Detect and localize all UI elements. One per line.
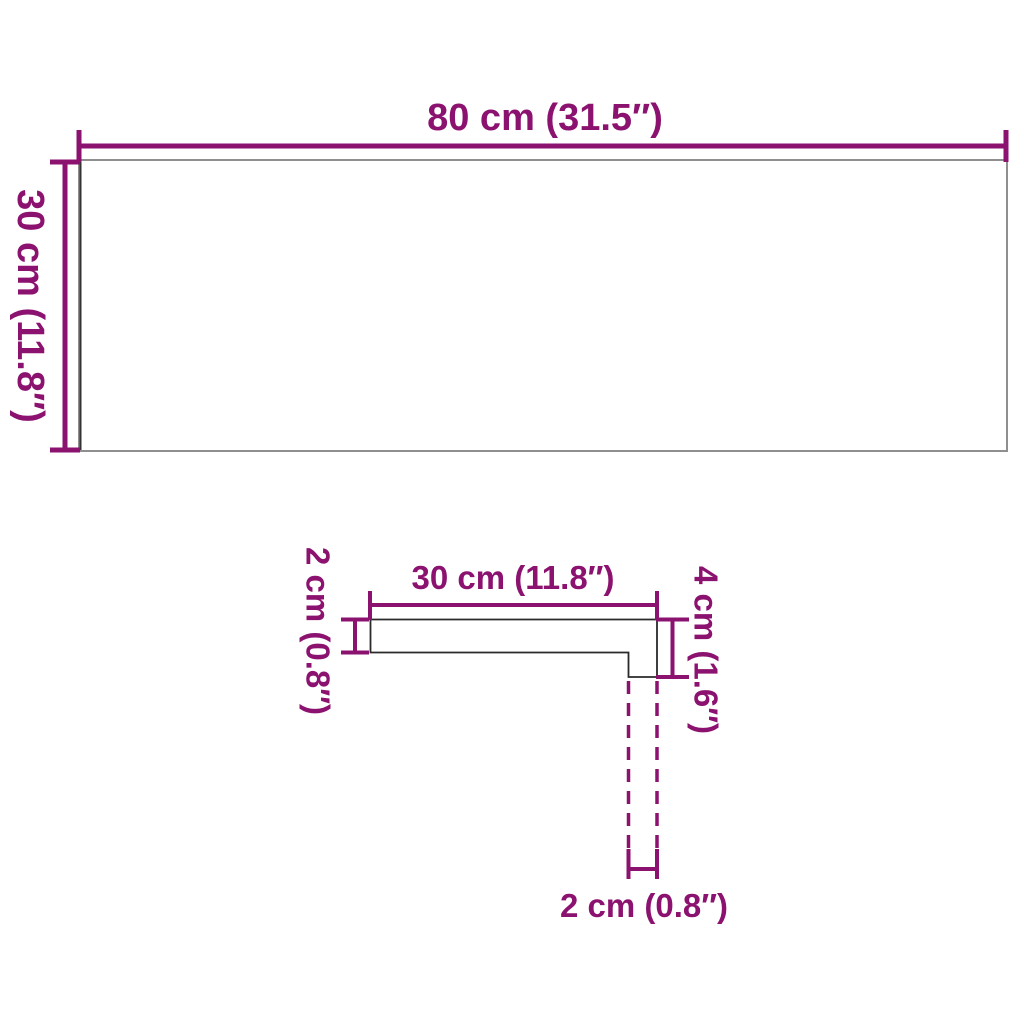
board-top-view-rectangle	[79, 160, 1007, 451]
top-view: 80 cm (31.5″) 30 cm (11.8″)	[9, 97, 1007, 451]
profile-thickness-dimension: 2 cm (0.8″)	[300, 547, 370, 715]
profile-nose-width-label: 2 cm (0.8″)	[560, 887, 728, 924]
profile-view: 30 cm (11.8″) 2 cm (0.8″) 4 cm (1.6″)	[300, 547, 729, 924]
profile-edge-height-label: 4 cm (1.6″)	[688, 566, 725, 734]
profile-nose-width-dimension: 2 cm (0.8″)	[560, 849, 728, 924]
profile-outline-shape	[371, 620, 658, 678]
profile-edge-height-dimension: 4 cm (1.6″)	[656, 566, 725, 734]
height-dimension: 30 cm (11.8″)	[9, 162, 80, 450]
diagram-svg: 80 cm (31.5″) 30 cm (11.8″) 30 cm (11.8″…	[0, 0, 1024, 1024]
width-dimension-label: 80 cm (31.5″)	[427, 97, 663, 139]
profile-width-label: 30 cm (11.8″)	[412, 559, 615, 596]
height-dimension-label: 30 cm (11.8″)	[9, 189, 51, 423]
product-dimension-diagram: 80 cm (31.5″) 30 cm (11.8″) 30 cm (11.8″…	[0, 0, 1024, 1024]
profile-thickness-label: 2 cm (0.8″)	[300, 547, 337, 715]
profile-width-dimension: 30 cm (11.8″)	[370, 559, 657, 620]
profile-nose-projection-lines	[629, 681, 658, 849]
width-dimension: 80 cm (31.5″)	[79, 97, 1006, 162]
